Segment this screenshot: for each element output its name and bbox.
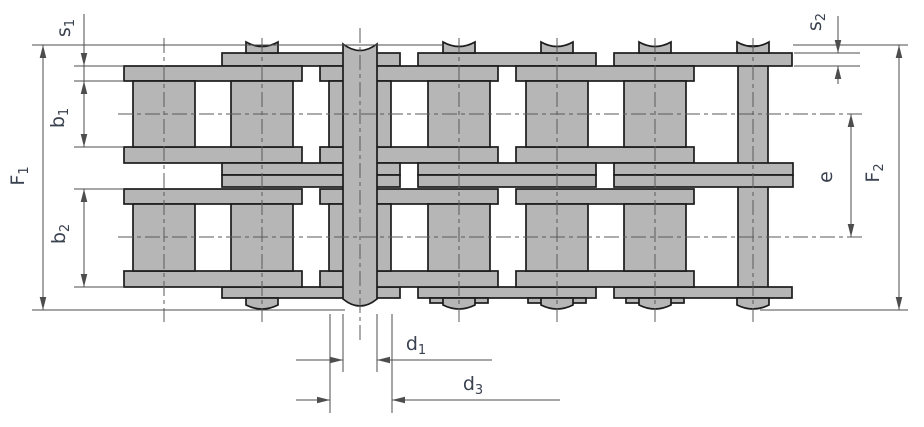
- inner-plate-row2-bottom: [124, 271, 302, 287]
- dimension-arrow: [896, 45, 903, 58]
- dimension-arrow: [40, 45, 47, 58]
- dimension-arrow: [377, 357, 390, 364]
- inner-plate-row2-bottom: [516, 271, 694, 287]
- middle-plate: [614, 163, 793, 175]
- middle-plate: [418, 175, 596, 187]
- middle-plate: [418, 163, 596, 175]
- inner-plate-row1-top: [124, 66, 302, 81]
- dimension-arrow: [848, 114, 855, 127]
- inner-plate-row2-top: [516, 189, 694, 204]
- dimension-arrow: [835, 66, 842, 79]
- dim-label-d1: d1: [406, 333, 426, 358]
- dimension-arrow: [392, 397, 405, 404]
- dim-label-f2: F2: [862, 163, 887, 182]
- dimension-arrow: [317, 397, 330, 404]
- duplex-roller-chain-drawing: s1b1F1b2s2eF2d1d3: [0, 0, 924, 427]
- dimension-arrow: [81, 81, 88, 94]
- dim-label-b1: b1: [47, 108, 72, 128]
- dim-label-s1: s1: [53, 19, 78, 37]
- dim-label-b2: b2: [48, 224, 73, 244]
- dimension-arrow: [81, 189, 88, 202]
- inner-plate-row1-bottom: [516, 147, 694, 163]
- inner-plate-row1-bottom: [124, 147, 302, 163]
- dimension-arrow: [835, 40, 842, 53]
- outer-plate-top: [418, 53, 596, 66]
- inner-plate-row2-top: [124, 189, 302, 204]
- dimension-arrow: [330, 357, 343, 364]
- dim-label-e: e: [815, 171, 837, 183]
- outer-plate-bottom: [614, 287, 792, 298]
- dim-label-f1: F1: [7, 166, 32, 185]
- chain-dimension-diagram: s1b1F1b2s2eF2d1d3: [0, 0, 924, 427]
- dim-label-s2: s2: [804, 13, 829, 31]
- dimension-arrow: [81, 134, 88, 147]
- middle-plate: [614, 175, 793, 187]
- dim-label-d3: d3: [463, 373, 483, 398]
- dimension-arrow: [81, 53, 88, 66]
- dimension-arrow: [81, 274, 88, 287]
- outer-plate-top: [614, 53, 792, 66]
- inner-plate-row1-top: [516, 66, 694, 81]
- dimension-arrow: [896, 297, 903, 310]
- dimension-arrow: [848, 224, 855, 237]
- dimension-arrow: [40, 297, 47, 310]
- outer-plate-bottom: [418, 287, 596, 298]
